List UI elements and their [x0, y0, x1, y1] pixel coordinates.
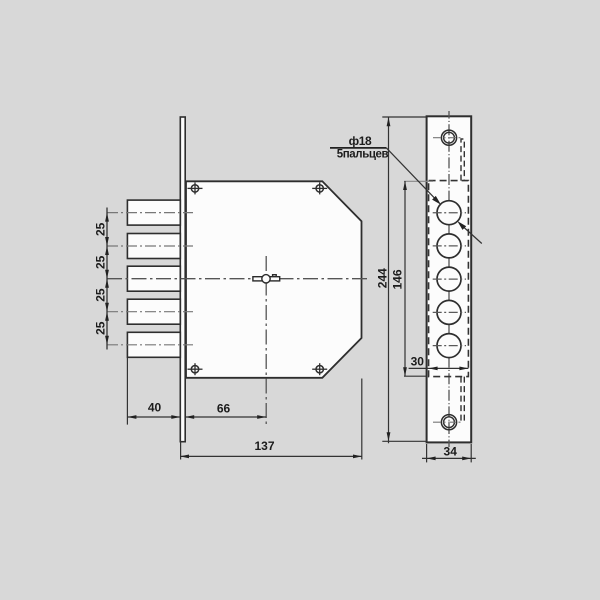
svg-text:34: 34 [444, 444, 458, 458]
svg-text:25: 25 [94, 255, 108, 269]
svg-text:30: 30 [411, 354, 425, 368]
svg-text:146: 146 [390, 269, 404, 289]
svg-text:25: 25 [94, 321, 108, 335]
svg-text:25: 25 [94, 288, 108, 302]
svg-text:66: 66 [217, 402, 231, 416]
svg-text:25: 25 [94, 222, 108, 236]
svg-text:ф18: ф18 [349, 134, 372, 148]
svg-text:40: 40 [148, 401, 162, 415]
svg-text:137: 137 [254, 439, 274, 453]
svg-text:5пальцев: 5пальцев [337, 149, 389, 161]
svg-text:244: 244 [375, 268, 389, 288]
